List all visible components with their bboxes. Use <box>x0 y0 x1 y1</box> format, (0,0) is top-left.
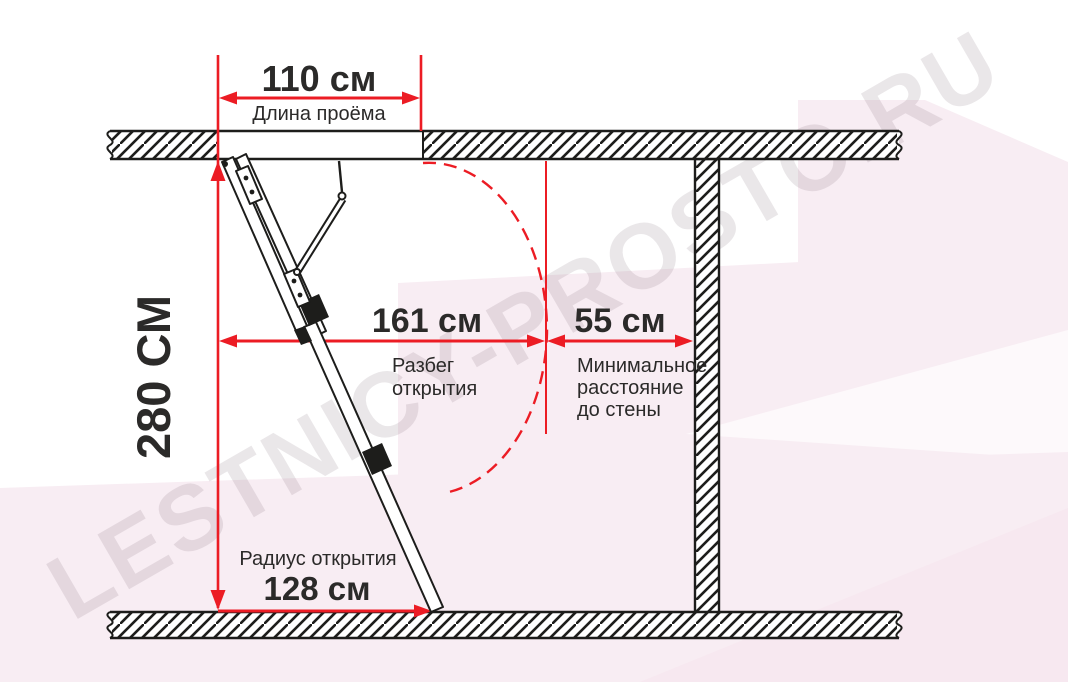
floor-hatching <box>112 613 897 637</box>
clearance-value-label: 55 см <box>574 302 665 340</box>
swing-caption-line1: Разбег <box>392 355 454 377</box>
clearance-caption-line1: Минимальное <box>577 355 707 377</box>
spring-pivot <box>339 193 346 200</box>
bracket-hole <box>250 190 255 195</box>
diagram-canvas: LESTNICY-PROSTO.RU <box>0 0 1068 682</box>
clearance-caption-line2: расстояние <box>577 377 683 399</box>
wall-section <box>695 159 719 613</box>
radius-value-label: 128 см <box>264 570 371 607</box>
floor-section <box>107 612 901 638</box>
ceiling-opening-box <box>218 131 423 159</box>
opening-caption-label: Длина проёма <box>252 103 386 125</box>
ceiling-section <box>107 131 901 159</box>
bracket-hole <box>244 176 249 181</box>
swing-caption-line2: открытия <box>392 378 477 400</box>
attic-ladder-dimensions-diagram: LESTNICY-PROSTO.RU <box>0 0 1068 682</box>
bracket-hole <box>298 293 303 298</box>
ceiling-hatching-right <box>423 132 897 158</box>
ceiling-hatching-left <box>112 132 218 158</box>
bracket-hole <box>292 279 297 284</box>
height-value-label: 280 СМ <box>127 295 180 459</box>
radius-caption-label: Радиус открытия <box>239 548 396 570</box>
clearance-caption-line3: до стены <box>577 399 661 421</box>
spring-end-roller <box>294 269 300 275</box>
swing-value-label: 161 см <box>372 302 482 340</box>
opening-value-label: 110 см <box>262 58 377 99</box>
wall-hatching <box>696 160 718 611</box>
door-hinge-pivot <box>222 161 228 167</box>
